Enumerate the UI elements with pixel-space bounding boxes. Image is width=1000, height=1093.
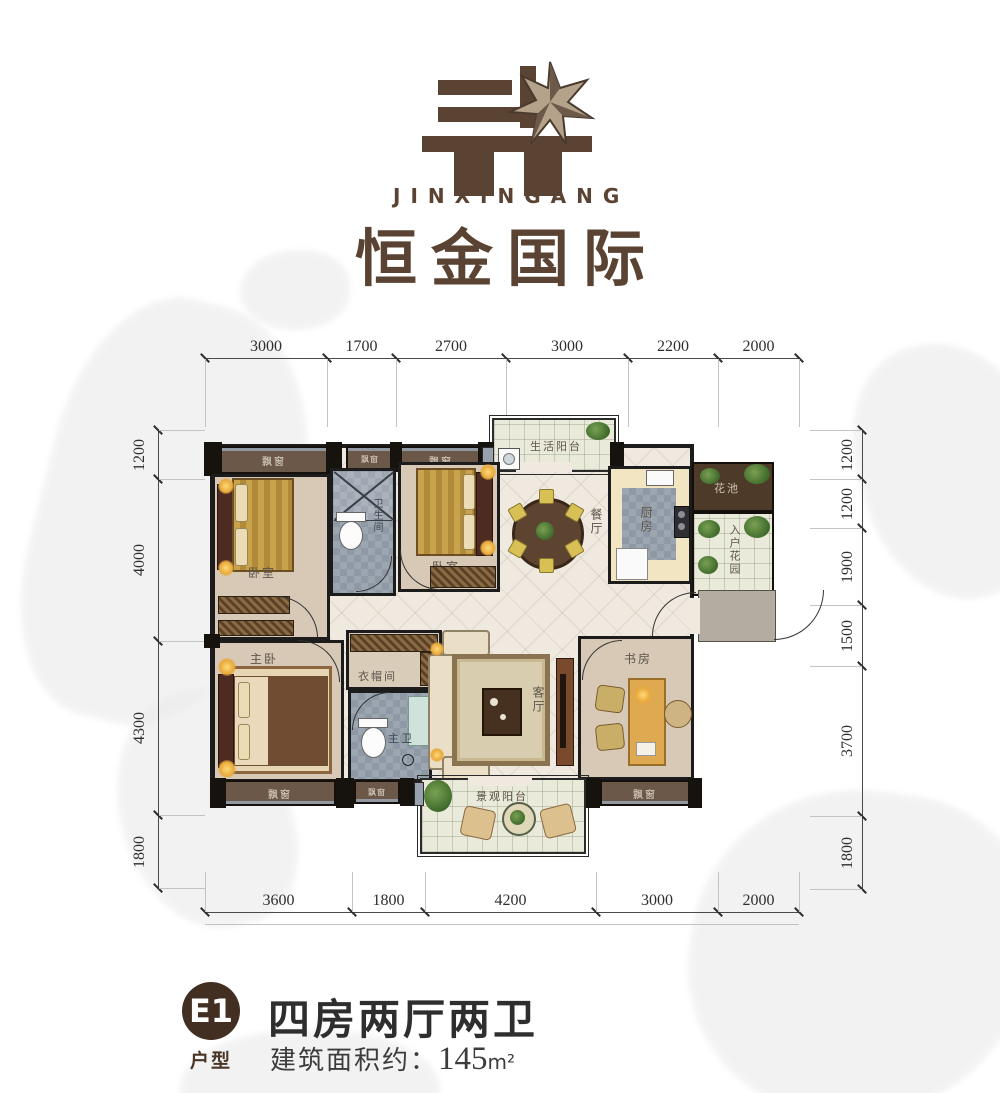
wall-column [336,778,354,808]
bay-window-label: 飘窗 [633,786,657,801]
dim-extension-line [718,359,719,427]
area-line: 建筑面积约：145m² [270,1040,515,1078]
plant-icon [510,810,525,825]
dim-label: 1200 [839,439,857,471]
dining-centerpiece-icon [536,522,554,540]
door-opening [468,776,532,786]
dim-label: 2700 [396,336,506,356]
lamp-icon [218,478,234,494]
dim-extension-line [159,815,205,816]
pillow [238,724,250,760]
dim-label: 1900 [839,551,857,583]
bay-window-label: 飘窗 [262,453,286,468]
bay-window: 飘窗 [600,780,690,806]
dim-extension-line [810,889,862,890]
table-decor-icon [490,698,498,706]
dim-extension-line [506,359,507,415]
dim-extension-line [810,528,862,529]
dining-chair [539,489,554,504]
label-entry-garden: 入户花园 [726,524,742,576]
wall-column [204,442,222,476]
layout-title: 四房两厅两卫 [268,986,538,1047]
dim-left: 1200 4000 4300 1800 [125,430,155,888]
dim-label: 4200 [425,890,596,910]
pillow [235,528,248,566]
unit-code-badge: E1 [182,982,240,1040]
wall-column [204,634,220,648]
brand-name-en: JINXINGANG [383,184,617,208]
plant-icon [424,780,452,812]
lamp-icon [480,540,496,556]
label-kitchen: 厨房 [638,506,655,534]
bed-headboard [218,674,234,768]
plant-icon [698,520,720,538]
table-decor-icon [500,714,506,720]
label-bedroom-1: 卧室 [248,564,276,581]
dim-extension-line [159,888,205,889]
stove-burner-icon [678,523,685,530]
wall-column [586,778,600,808]
dim-extension-line [352,872,353,912]
dim-extension-line [159,479,205,480]
dim-line-secondary [205,924,799,925]
balcony-chair [459,805,497,841]
bay-window: 飘窗 [220,446,328,474]
dim-label: 1800 [352,890,425,910]
unit-code: E1 [189,992,233,1030]
wall-column [400,778,414,806]
entry-door-swing [774,590,824,640]
dim-extension-line [628,359,629,427]
washing-machine-drum-icon [503,453,515,465]
coffee-table [482,688,522,736]
dim-label: 1700 [327,336,396,356]
bay-window: 飘窗 [224,780,336,806]
wall-column [210,778,226,808]
bay-window-label: 飘窗 [368,787,386,798]
guest-chair [595,723,626,752]
dim-bottom: 3600 1800 4200 3000 2000 [205,890,799,910]
bay-window: 飘窗 [354,780,400,804]
label-cloakroom: 衣帽间 [358,668,397,684]
kitchen-appliance-icon [616,548,648,580]
sink-icon [646,470,674,486]
dim-extension-line [327,359,328,427]
dim-extension-line [596,872,597,912]
label-master-bedroom: 主卧 [250,650,278,667]
dim-label: 1200 [839,488,857,520]
plant-icon [698,556,718,574]
area-unit: m² [488,1050,516,1074]
area-prefix: 建筑面积约： [270,1046,438,1076]
plant-icon [744,464,770,484]
dim-label: 1200 [131,439,149,471]
dim-label: 3000 [506,336,628,356]
dim-label: 3700 [839,725,857,757]
dim-extension-line [159,430,205,431]
armchair [442,630,490,656]
dining-chair [539,558,554,573]
label-living: 客厅 [530,686,547,714]
pillow [463,514,475,550]
lamp-icon [634,686,652,704]
dim-line [205,912,799,913]
label-bathroom: 卫生间 [369,498,384,534]
entry-mat [698,590,776,642]
pillow [238,682,250,718]
lamp-icon [218,658,236,676]
dim-extension-line [810,479,862,480]
guest-chair [594,684,625,714]
door-opening [516,462,572,472]
lamp-icon [430,748,444,762]
dim-label: 2000 [718,336,799,356]
dim-extension-line [810,666,862,667]
dim-line [158,430,159,888]
page: JINXINGANG 恒金国际 3000 1700 2700 3000 2200… [0,0,1000,1093]
dim-extension-line [810,430,862,431]
dim-extension-line [799,872,800,912]
pillow [463,474,475,510]
floor-drain-icon [402,754,414,766]
dim-label: 2200 [628,336,718,356]
office-chair [664,700,692,728]
lamp-icon [480,464,496,480]
label-master-bath: 主卫 [388,730,414,746]
dim-label: 3600 [205,890,352,910]
dim-extension-line [425,872,426,912]
dim-extension-line [810,816,862,817]
toilet-icon [339,521,363,550]
plant-icon [744,516,770,538]
dim-label: 1800 [839,837,857,869]
dim-extension-line [159,641,205,642]
label-flower-bed: 花池 [714,480,740,496]
dim-label: 4300 [131,712,149,744]
bay-window-label: 飘窗 [361,454,379,465]
dim-label: 1500 [839,620,857,652]
label-dining: 餐厅 [588,508,605,536]
dim-label: 1800 [131,836,149,868]
plant-icon [586,422,610,440]
brand-name-cn: 恒金国际 [318,208,682,298]
area-value: 145 [438,1041,488,1077]
window-glass [414,782,424,806]
label-study: 书房 [624,650,652,667]
stove-burner-icon [678,511,685,518]
dim-line [862,430,863,889]
dim-label: 4000 [131,544,149,576]
desk-papers-icon [636,742,656,756]
lamp-icon [218,760,236,778]
dim-right: 1200 1200 1900 1500 3700 1800 [833,430,863,889]
toilet-icon [361,727,386,758]
tv-icon [560,674,566,748]
bay-window-label: 飘窗 [268,786,292,801]
dim-extension-line [205,872,206,912]
lamp-icon [430,642,444,656]
dim-extension-line [205,359,206,427]
wall-column [688,778,702,808]
wardrobe-hatch [350,634,438,652]
lamp-icon [218,560,234,576]
dim-extension-line [799,359,800,427]
dim-extension-line [396,359,397,427]
dim-line [205,358,799,359]
label-life-balcony: 生活阳台 [530,438,582,454]
dim-extension-line [718,872,719,912]
dim-label: 3000 [205,336,327,356]
dim-label: 3000 [596,890,718,910]
unit-type-label: 户型 [182,1046,240,1073]
dim-label: 2000 [718,890,799,910]
pillow [235,484,248,522]
